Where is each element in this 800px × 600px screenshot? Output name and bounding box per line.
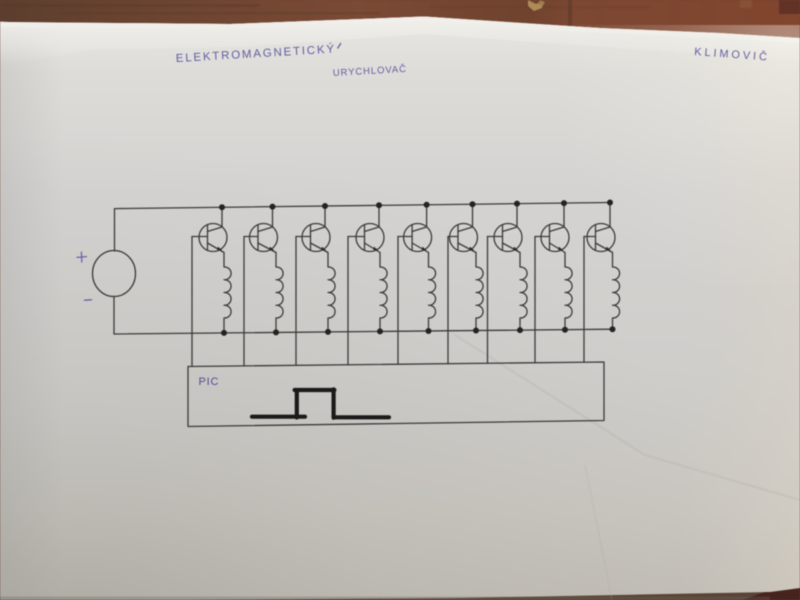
svg-text:PIC: PIC bbox=[199, 376, 220, 388]
